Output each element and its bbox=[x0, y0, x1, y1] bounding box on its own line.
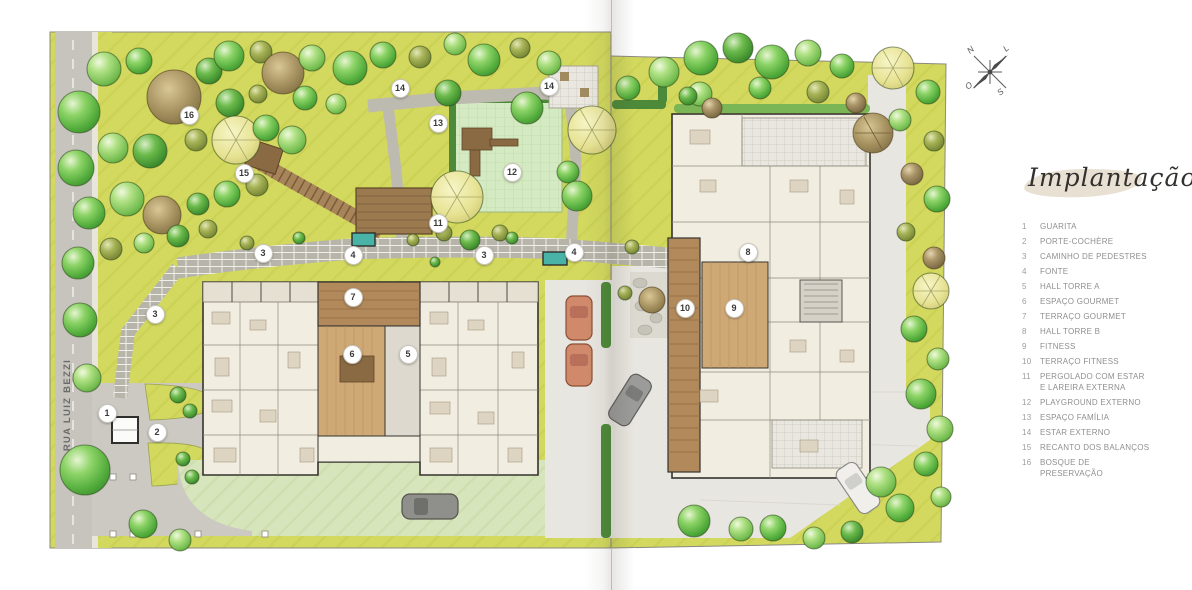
plan-marker-6: 6 bbox=[343, 345, 362, 364]
legend-item-number: 7 bbox=[1022, 311, 1035, 322]
legend-item: 1GUARITA bbox=[1022, 221, 1178, 232]
legend-item: 7TERRAÇO GOURMET bbox=[1022, 311, 1178, 322]
tower-b-building bbox=[668, 114, 870, 478]
legend-item-label: PERGOLADO COM ESTAR E LAREIRA EXTERNA bbox=[1040, 371, 1152, 393]
legend-item: 9FITNESS bbox=[1022, 341, 1178, 352]
legend-item-number: 5 bbox=[1022, 281, 1035, 292]
legend-item-label: TERRAÇO GOURMET bbox=[1040, 311, 1126, 322]
plan-marker-4b: 4 bbox=[565, 243, 584, 262]
legend-item: 3CAMINHO DE PEDESTRES bbox=[1022, 251, 1178, 262]
car-salmon-2 bbox=[566, 344, 592, 386]
legend-item-number: 12 bbox=[1022, 397, 1035, 408]
legend-items-list: 1GUARITA 2PORTE-COCHÈRE 3CAMINHO DE PEDE… bbox=[1022, 221, 1178, 479]
car-salmon-1 bbox=[566, 296, 592, 340]
plan-marker-8: 8 bbox=[739, 243, 758, 262]
page-fold-line-top bbox=[611, 0, 612, 34]
car-gray-lawn bbox=[402, 494, 458, 519]
legend-item-number: 8 bbox=[1022, 326, 1035, 337]
pergola-deck bbox=[356, 188, 432, 234]
legend-item-number: 10 bbox=[1022, 356, 1035, 367]
plan-marker-2: 2 bbox=[148, 423, 167, 442]
legend-item-label: CAMINHO DE PEDESTRES bbox=[1040, 251, 1147, 262]
legend-item-number: 1 bbox=[1022, 221, 1035, 232]
legend-item-number: 4 bbox=[1022, 266, 1035, 277]
plan-marker-5: 5 bbox=[399, 345, 418, 364]
legend-item: 5HALL TORRE A bbox=[1022, 281, 1178, 292]
plan-marker-16: 16 bbox=[180, 106, 199, 125]
legend-item: 16BOSQUE DE PRESERVAÇÃO bbox=[1022, 457, 1178, 479]
legend-item-label: ESPAÇO FAMÍLIA bbox=[1040, 412, 1109, 423]
legend-panel: Implantação 1GUARITA 2PORTE-COCHÈRE 3CAM… bbox=[1022, 163, 1178, 483]
compass-rose: N L S O bbox=[950, 38, 1028, 108]
plan-marker-3a: 3 bbox=[254, 244, 273, 263]
plan-marker-10: 10 bbox=[676, 299, 695, 318]
legend-item-number: 15 bbox=[1022, 442, 1035, 453]
legend-item-label: HALL TORRE A bbox=[1040, 281, 1100, 292]
legend-item-label: FONTE bbox=[1040, 266, 1068, 277]
plan-marker-15: 15 bbox=[235, 164, 254, 183]
brochure-spread: RUA LUIZ BEZZI N L S O 16 15 14 13 14 12… bbox=[0, 0, 1192, 590]
legend-title: Implantação bbox=[1028, 163, 1192, 192]
legend-item: 13ESPAÇO FAMÍLIA bbox=[1022, 412, 1178, 423]
plan-marker-1: 1 bbox=[98, 404, 117, 423]
legend-item: 14ESTAR EXTERNO bbox=[1022, 427, 1178, 438]
legend-item-label: PLAYGROUND EXTERNO bbox=[1040, 397, 1141, 408]
plan-marker-4a: 4 bbox=[344, 246, 363, 265]
compass-west-label: O bbox=[963, 79, 975, 91]
compass-south-label: S bbox=[995, 86, 1006, 98]
plan-marker-3b: 3 bbox=[475, 246, 494, 265]
compass-north-label: N bbox=[965, 43, 977, 55]
legend-item-number: 9 bbox=[1022, 341, 1035, 352]
legend-item: 8HALL TORRE B bbox=[1022, 326, 1178, 337]
street-name-label: RUA LUIZ BEZZI bbox=[62, 343, 74, 467]
legend-item-number: 14 bbox=[1022, 427, 1035, 438]
legend-item-label: HALL TORRE B bbox=[1040, 326, 1100, 337]
legend-item-number: 16 bbox=[1022, 457, 1035, 479]
legend-item: 12PLAYGROUND EXTERNO bbox=[1022, 397, 1178, 408]
legend-item-label: PORTE-COCHÈRE bbox=[1040, 236, 1113, 247]
legend-item-label: ESTAR EXTERNO bbox=[1040, 427, 1110, 438]
plan-marker-11: 11 bbox=[429, 214, 448, 233]
tower-a-building bbox=[203, 282, 538, 475]
compass-east-label: L bbox=[1001, 43, 1011, 54]
legend-item: 11PERGOLADO COM ESTAR E LAREIRA EXTERNA bbox=[1022, 371, 1178, 393]
legend-item-number: 2 bbox=[1022, 236, 1035, 247]
legend-item-label: RECANTO DOS BALANÇOS bbox=[1040, 442, 1149, 453]
legend-item: 2PORTE-COCHÈRE bbox=[1022, 236, 1178, 247]
plan-marker-13: 13 bbox=[429, 114, 448, 133]
plan-marker-14a: 14 bbox=[391, 79, 410, 98]
plan-marker-14b: 14 bbox=[540, 77, 559, 96]
legend-item-label: GUARITA bbox=[1040, 221, 1077, 232]
legend-item-number: 11 bbox=[1022, 371, 1035, 393]
legend-item-number: 13 bbox=[1022, 412, 1035, 423]
plan-marker-3c: 3 bbox=[146, 305, 165, 324]
legend-item-number: 6 bbox=[1022, 296, 1035, 307]
legend-item: 10TERRAÇO FITNESS bbox=[1022, 356, 1178, 367]
plan-marker-7: 7 bbox=[344, 288, 363, 307]
legend-item-label: FITNESS bbox=[1040, 341, 1076, 352]
page-fold-line-bottom bbox=[611, 548, 612, 590]
legend-title-block: Implantação bbox=[1022, 163, 1178, 209]
legend-item: 15RECANTO DOS BALANÇOS bbox=[1022, 442, 1178, 453]
legend-item-label: BOSQUE DE PRESERVAÇÃO bbox=[1040, 457, 1152, 479]
plan-marker-12: 12 bbox=[503, 163, 522, 182]
legend-item-label: TERRAÇO FITNESS bbox=[1040, 356, 1119, 367]
plan-marker-9: 9 bbox=[725, 299, 744, 318]
legend-item: 6ESPAÇO GOURMET bbox=[1022, 296, 1178, 307]
legend-item-number: 3 bbox=[1022, 251, 1035, 262]
legend-item: 4FONTE bbox=[1022, 266, 1178, 277]
legend-item-label: ESPAÇO GOURMET bbox=[1040, 296, 1119, 307]
